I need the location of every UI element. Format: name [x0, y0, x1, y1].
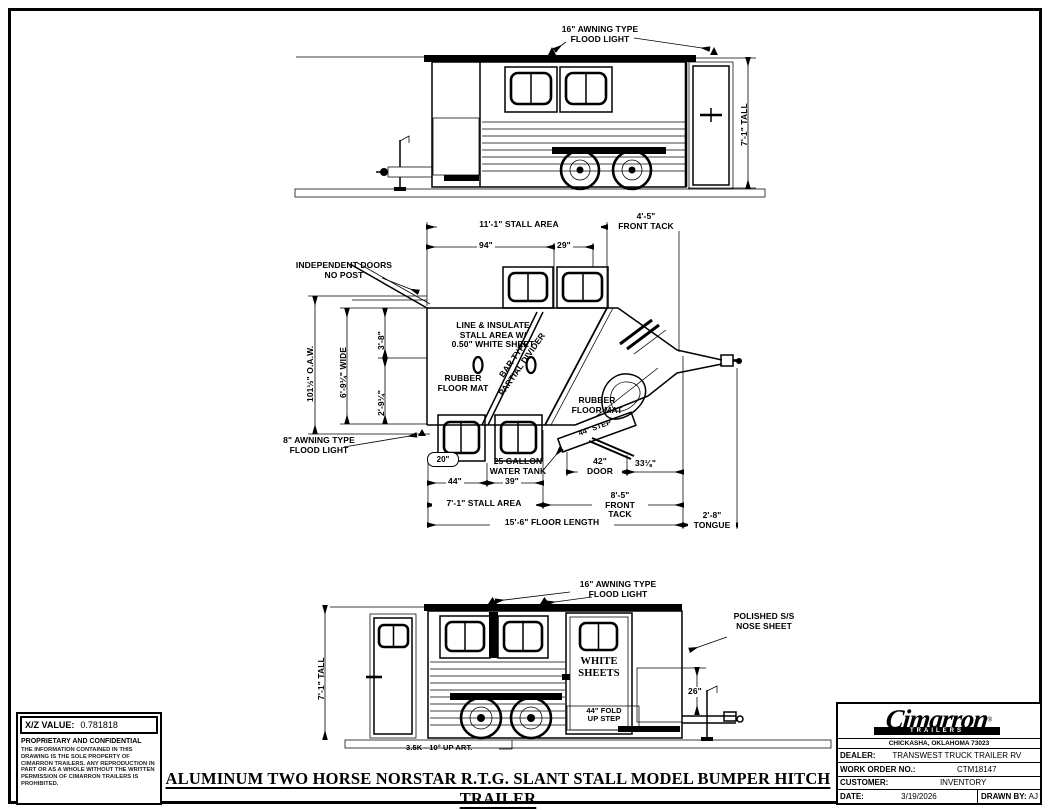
- registered-mark: ®: [988, 718, 992, 724]
- customer-value: INVENTORY: [888, 778, 1038, 787]
- trailer-body: [432, 62, 686, 187]
- dealer-row: DEALER: TRANSWEST TRUCK TRAILER RV: [838, 748, 1040, 762]
- window: [440, 616, 490, 658]
- drawn-by-label: DRAWN BY:: [977, 790, 1027, 803]
- window: [495, 415, 542, 461]
- dim-20-pill: 20": [427, 452, 459, 467]
- water-tank-note: 25 GALLON WATER TANK: [487, 457, 549, 476]
- floor-length-dim-label: 15'-6" FLOOR LENGTH: [490, 518, 614, 528]
- window: [505, 67, 557, 112]
- overall-width-dim-label: 101½" O.A.W.: [305, 346, 315, 402]
- dim-2-9-label: 2'-9¼": [376, 390, 386, 416]
- flood-light-note-plan: 8" AWNING TYPE FLOOD LIGHT: [272, 436, 366, 455]
- cimarron-logo: Cimarron® TRAILERS: [838, 704, 1040, 738]
- xz-value-label: X/Z VALUE:: [25, 720, 74, 730]
- front-tack-bottom-dim-label: 8'-5" FRONT TACK: [592, 491, 648, 520]
- dealer-value: TRANSWEST TRUCK TRAILER RV: [876, 751, 1038, 760]
- tongue-dim-label: 2'-8" TONGUE: [688, 511, 736, 530]
- work-order-row: WORK ORDER NO.: CTM18147: [838, 762, 1040, 776]
- stall-area-bottom-dim-label: 7'-1" STALL AREA: [432, 499, 536, 509]
- cad-drawing-sheet: { "sheet": { "drawing_title": "ALUMINUM …: [0, 0, 1048, 810]
- brand-address: CHICKASHA, OKLAHOMA 73023: [838, 738, 1040, 748]
- dim-44-label: 44": [446, 477, 464, 487]
- height-dim-label-bottom: 7'-1" TALL: [316, 657, 326, 700]
- ground-hatch: [295, 189, 765, 197]
- open-rear-door: [366, 614, 416, 738]
- fender: [450, 693, 562, 700]
- dim-39-label: 39": [503, 477, 521, 487]
- proprietary-box: X/Z VALUE: 0.781818 PROPRIETARY AND CONF…: [16, 712, 162, 805]
- dim-3-8-label: 3'-8": [376, 331, 386, 350]
- dim-94-label: 94": [477, 241, 495, 251]
- nose-sheet-note: POLISHED S/S NOSE SHEET: [724, 612, 804, 631]
- axle-note: 3.5K - 10° UP ART.: [406, 744, 473, 752]
- door-dim-label: 42" DOOR: [578, 457, 622, 476]
- window: [503, 267, 553, 308]
- checker-panel: [637, 668, 682, 722]
- confidential-text: THE INFORMATION CONTAINED IN THIS DRAWIN…: [18, 746, 160, 789]
- customer-row: CUSTOMER: INVENTORY: [838, 776, 1040, 790]
- date-row: DATE: 3/19/2026 DRAWN BY: AJ: [838, 789, 1040, 803]
- open-rear-door: [689, 62, 733, 189]
- tongue-and-jack: [376, 136, 432, 191]
- xz-value-row: X/Z VALUE: 0.781818: [20, 716, 158, 734]
- window: [557, 267, 608, 308]
- dim-33-label: 33⅛": [633, 459, 658, 469]
- confidential-title: PROPRIETARY AND CONFIDENTIAL: [18, 736, 160, 746]
- flood-light-note-bottom: 16" AWNING TYPE FLOOD LIGHT: [566, 580, 670, 599]
- customer-label: CUSTOMER:: [840, 778, 888, 787]
- drawn-by-value: AJ: [1027, 792, 1038, 801]
- drawing-title: ALUMINUM TWO HORSE NORSTAR R.T.G. SLANT …: [160, 769, 836, 809]
- flood-light-note-top: 16" AWNING TYPE FLOOD LIGHT: [548, 25, 652, 44]
- line-art-canvas: .thin{stroke:#000;stroke-width:.75;fill:…: [0, 0, 1048, 810]
- date-label: DATE:: [840, 792, 864, 801]
- trailer-body: [428, 611, 682, 738]
- height-dim-label-top: 7'-1" TALL: [739, 103, 749, 146]
- work-order-value: CTM18147: [916, 765, 1038, 774]
- roof-bar: [424, 604, 682, 611]
- inner-width-dim-label: 6'-9¼" WIDE: [338, 347, 348, 398]
- title-block: Cimarron® TRAILERS CHICKASHA, OKLAHOMA 7…: [836, 702, 1042, 805]
- front-tack-top-dim-label: 4'-5" FRONT TACK: [608, 212, 684, 231]
- work-order-label: WORK ORDER NO.:: [840, 765, 916, 774]
- rubber-mat-note-1: RUBBER FLOOR MAT: [432, 374, 494, 393]
- dim-26-label: 26": [686, 687, 704, 697]
- checker-panel: [433, 118, 479, 175]
- window: [498, 616, 548, 658]
- rubber-mat-note-2: RUBBER FLOOR MAT: [568, 396, 626, 415]
- date-value: 3/19/2026: [864, 792, 974, 801]
- stall-area-top-dim-label: 11'-1" STALL AREA: [437, 220, 601, 230]
- window: [560, 67, 612, 112]
- brand-subtitle-band: TRAILERS: [874, 727, 1000, 735]
- roof-bar: [424, 55, 696, 62]
- independent-doors-note: INDEPENDENT DOORS NO POST: [292, 261, 396, 280]
- side-slats: [482, 122, 685, 171]
- dim-29-label: 29": [555, 241, 573, 251]
- dealer-label: DEALER:: [840, 751, 876, 760]
- xz-value: 0.781818: [80, 720, 118, 730]
- fold-step-note: 44" FOLD UP STEP: [573, 707, 635, 724]
- tongue-a-frame: [677, 350, 742, 373]
- white-sheets-note: WHITE SHEETS: [572, 656, 626, 680]
- side-elevation-top: [295, 38, 765, 197]
